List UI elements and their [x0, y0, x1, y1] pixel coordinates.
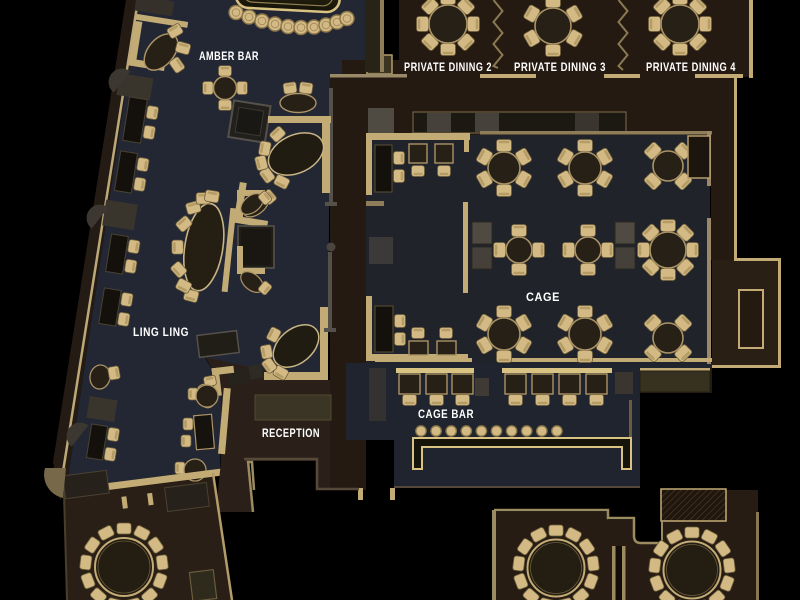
svg-text:PRIVATE DINING 4: PRIVATE DINING 4	[646, 62, 736, 74]
svg-text:RECEPTION: RECEPTION	[262, 428, 320, 440]
svg-text:LING LING: LING LING	[133, 327, 189, 339]
svg-text:PRIVATE DINING 3: PRIVATE DINING 3	[514, 62, 606, 74]
svg-text:CAGE: CAGE	[526, 292, 560, 304]
svg-text:PRIVATE DINING 2: PRIVATE DINING 2	[404, 62, 492, 74]
svg-text:CAGE BAR: CAGE BAR	[418, 409, 474, 421]
svg-text:AMBER BAR: AMBER BAR	[199, 51, 259, 63]
